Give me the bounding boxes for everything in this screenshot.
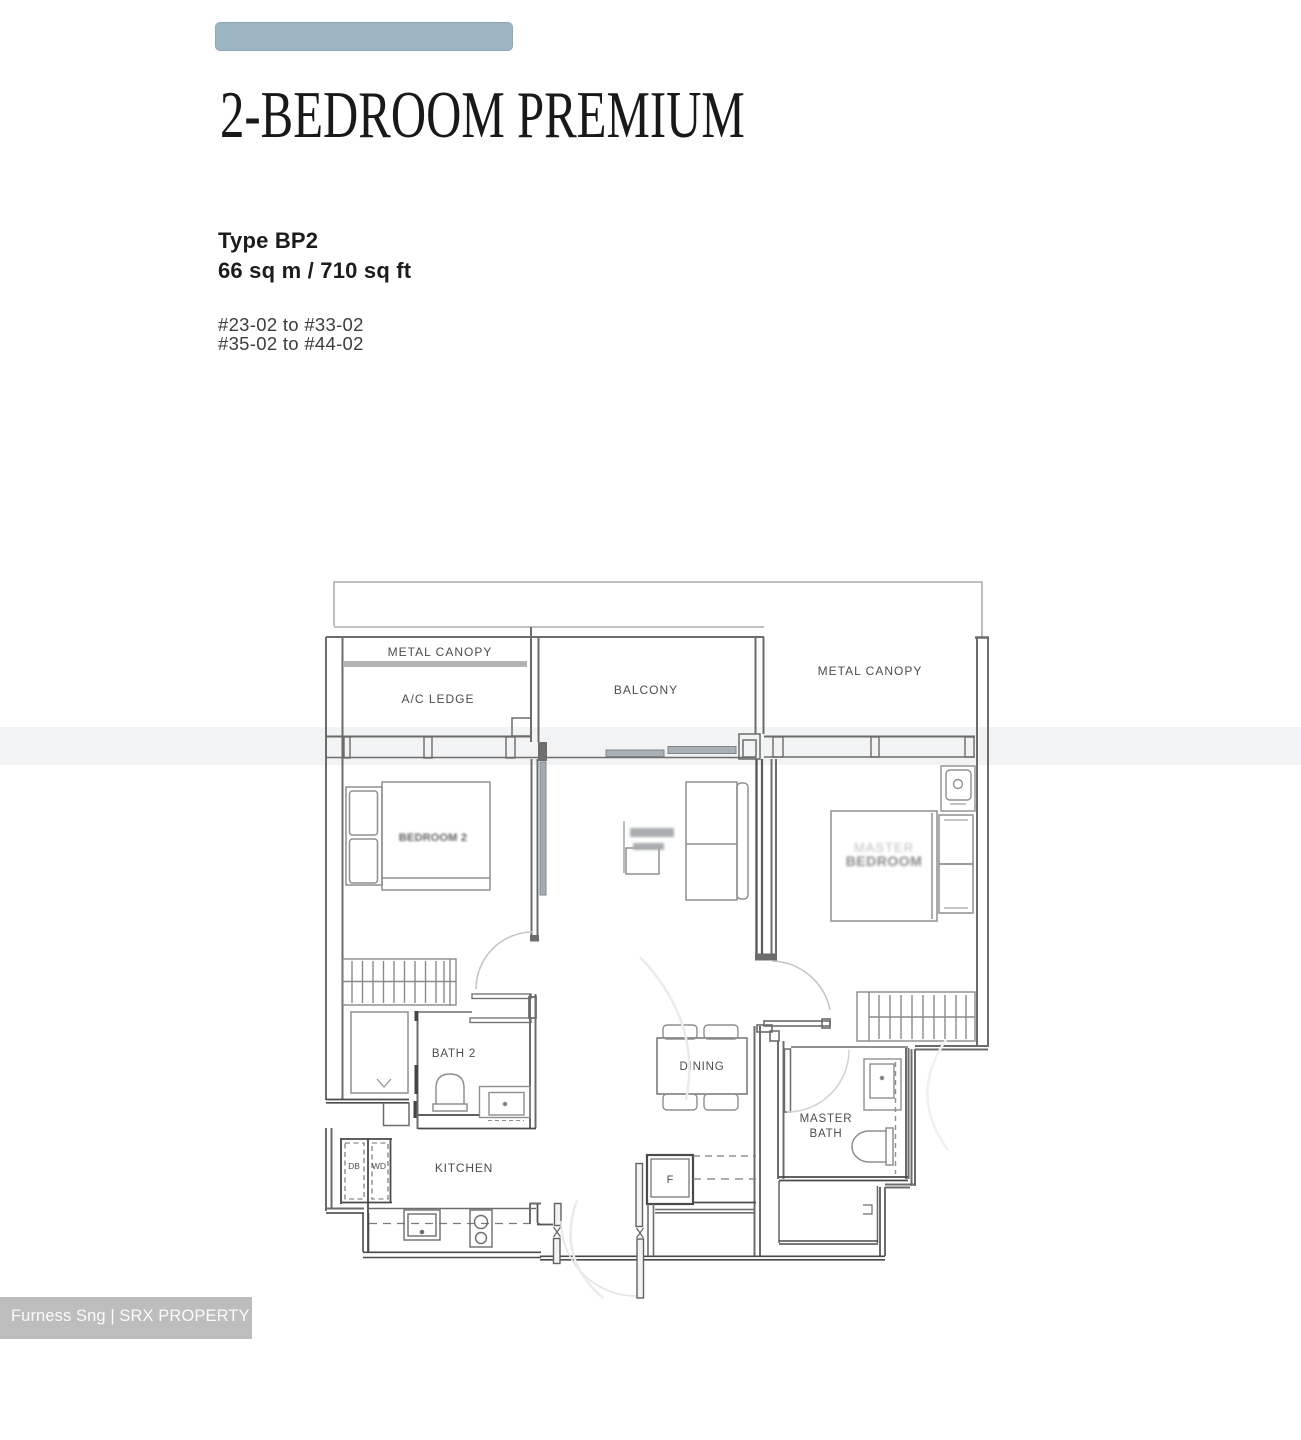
svg-text:MASTER: MASTER	[800, 1113, 853, 1125]
svg-text:METAL CANOPY: METAL CANOPY	[388, 645, 493, 659]
svg-text:DB: DB	[348, 1161, 360, 1171]
svg-text:BALCONY: BALCONY	[614, 683, 678, 697]
svg-text:BEDROOM 2: BEDROOM 2	[399, 832, 467, 844]
svg-text:BATH 2: BATH 2	[432, 1048, 476, 1060]
svg-text:F: F	[667, 1174, 674, 1186]
svg-text:BATH: BATH	[809, 1128, 842, 1140]
svg-text:KITCHEN: KITCHEN	[435, 1161, 493, 1175]
svg-text:DINING: DINING	[679, 1061, 724, 1073]
svg-text:WD: WD	[372, 1161, 386, 1171]
svg-text:METAL CANOPY: METAL CANOPY	[818, 664, 923, 678]
svg-text:BEDROOM: BEDROOM	[846, 853, 923, 869]
svg-text:A/C LEDGE: A/C LEDGE	[401, 692, 474, 706]
